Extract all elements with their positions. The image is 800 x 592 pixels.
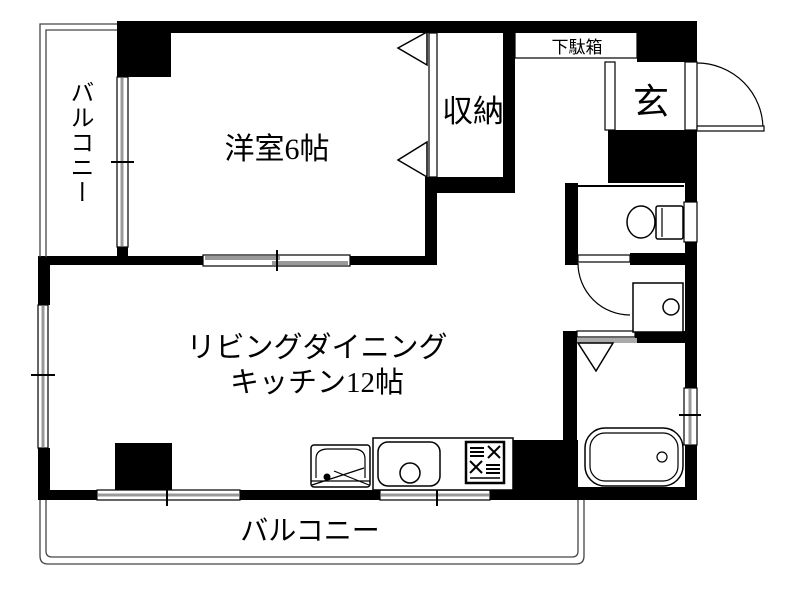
closet-folding-door-mark	[398, 142, 427, 177]
kitchen-counter	[373, 438, 513, 490]
entrance-step	[605, 62, 615, 130]
wall-block-kitchen	[513, 440, 578, 498]
wall-left-lower	[38, 448, 50, 500]
toilet-door-leaf	[578, 255, 630, 262]
wall-pillar-bottom	[115, 443, 172, 490]
toilet-door-swing-arc	[578, 263, 630, 315]
kitchen-sink-drain	[400, 463, 420, 483]
entry-door-frame	[685, 62, 697, 130]
wall-block-entrance	[608, 130, 697, 183]
toilet-bowl	[627, 206, 655, 238]
wall-segment	[117, 21, 637, 33]
wall-window-end	[117, 247, 128, 257]
bath-door-frame	[577, 331, 635, 337]
bath-folding-door	[577, 331, 637, 371]
label-ldk: リビングダイニング キッチン12帖	[167, 331, 467, 401]
wall-divider-right	[350, 256, 437, 265]
wall-pillar-top-left	[117, 21, 171, 77]
wall-toilet-top-line	[578, 185, 684, 187]
label-ldk-line1: リビングダイニング	[167, 331, 467, 366]
gas-stove	[466, 442, 504, 483]
wall-washroom-bottom	[635, 331, 697, 343]
label-balcony-bottom: バルコニー	[210, 509, 410, 549]
wall-room-corridor	[425, 193, 437, 265]
sliding-door	[203, 250, 350, 271]
laundry-pan-drain	[324, 474, 331, 481]
closet-folding-door-mark	[398, 32, 427, 65]
wall-toilet-left	[565, 183, 578, 265]
toilet-door	[578, 255, 630, 315]
toilet	[627, 206, 683, 239]
wall-divider-left	[38, 256, 205, 265]
bath-folding-door-mark	[578, 343, 613, 371]
washbasin	[633, 283, 683, 332]
washbasin-bowl	[663, 299, 679, 315]
wall-bath-bottom	[578, 487, 697, 500]
wall-closet-bottom	[425, 177, 515, 193]
wall-bottom-3	[490, 490, 578, 500]
entry-door-swing-arc	[697, 63, 763, 129]
entry-door-leaf	[697, 126, 764, 131]
sliding-door-panel	[272, 261, 348, 265]
floor-plan: バルコニー 洋室6帖 収納 下駄箱 玄 リビングダイニング キッチン12帖 バル…	[0, 0, 800, 592]
bathtub	[585, 428, 683, 486]
toilet-tank	[656, 206, 683, 239]
entry-door	[685, 62, 764, 131]
wall-block-top-right	[637, 21, 697, 62]
label-shoe-cabinet: 下駄箱	[517, 33, 637, 58]
sliding-door-panel	[205, 256, 280, 260]
bathtub-outer	[585, 428, 683, 486]
window-toilet	[684, 202, 697, 242]
laundry-pan	[311, 445, 370, 487]
label-entrance: 玄	[620, 73, 682, 125]
label-balcony-left: バルコニー	[62, 80, 97, 205]
label-western-room: 洋室6帖	[157, 124, 397, 168]
wall-bottom-2	[240, 490, 380, 500]
wall-toilet-bottom	[630, 253, 697, 265]
label-closet: 収納	[423, 86, 523, 131]
label-ldk-line2: キッチン12帖	[167, 366, 467, 401]
